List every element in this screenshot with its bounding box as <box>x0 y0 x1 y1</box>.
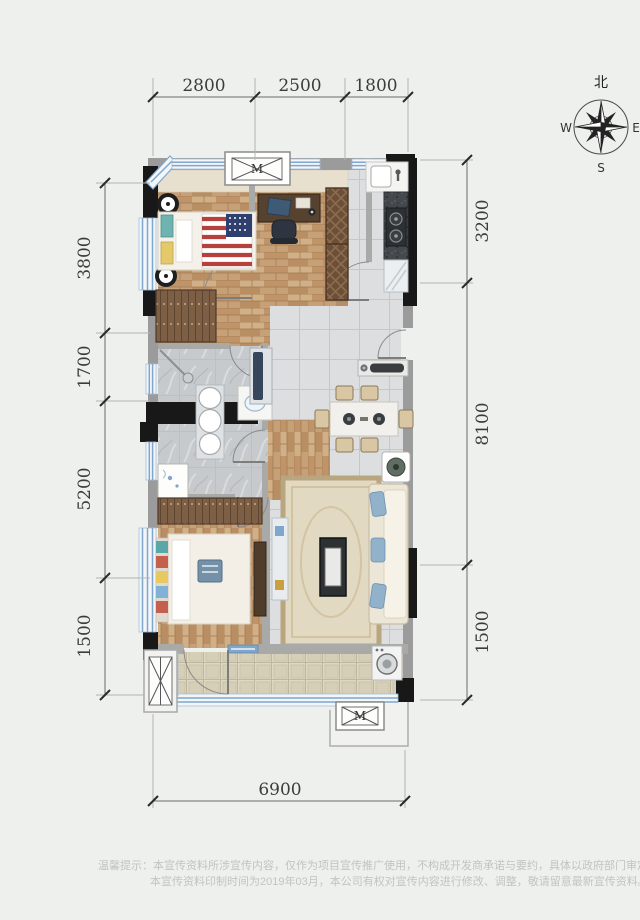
duct-box-top: M <box>225 152 290 185</box>
compass: 北 W E S <box>560 75 640 175</box>
dim-label: 1700 <box>75 345 95 388</box>
disclaimer-line-2: 本宣传资料印制时间为2019年03月，本公司有权对宣传内容进行修改、调整，敬请留… <box>98 875 640 891</box>
dim-label: 1800 <box>354 76 397 96</box>
master-bedroom-furniture <box>156 498 262 624</box>
dim-label: 2800 <box>182 76 225 96</box>
compass-north-label: 北 <box>594 75 608 91</box>
disclaimer: 温馨提示：本宣传资料所涉宣传内容，仅作为项目宣传推广使用，不构成开发商承诺与要约… <box>98 859 640 890</box>
dim-label: 3200 <box>473 199 493 242</box>
compass-west-label: W <box>560 121 572 135</box>
dim-label: 1500 <box>75 614 95 657</box>
disclaimer-line-1: 温馨提示：本宣传资料所涉宣传内容，仅作为项目宣传推广使用，不构成开发商承诺与要约… <box>98 859 640 875</box>
duct-marker-top: M <box>251 162 263 176</box>
dimension-right: 3200 8100 1500 <box>420 155 493 705</box>
ac-platform-left <box>144 650 177 712</box>
dim-label: 2500 <box>278 76 321 96</box>
compass-east-label: E <box>632 121 640 135</box>
dim-label: 6900 <box>258 780 301 800</box>
compass-south-label: S <box>597 161 605 175</box>
balcony-furniture <box>372 646 402 680</box>
dim-label: 5200 <box>75 467 95 510</box>
dim-label: 3800 <box>75 236 95 279</box>
floor-plan-drawing: M M 2800 2500 1800 3800 1700 5200 1500 3… <box>0 0 640 920</box>
dim-label: 1500 <box>473 610 493 653</box>
duct-marker-bottom: M <box>354 709 366 723</box>
floor-plan-page: M M 2800 2500 1800 3800 1700 5200 1500 3… <box>0 0 640 920</box>
dimension-top: 2800 2500 1800 <box>148 76 413 160</box>
dim-label: 8100 <box>473 402 493 445</box>
duct-box-bottom: M <box>330 702 408 746</box>
entry-console <box>358 360 408 376</box>
